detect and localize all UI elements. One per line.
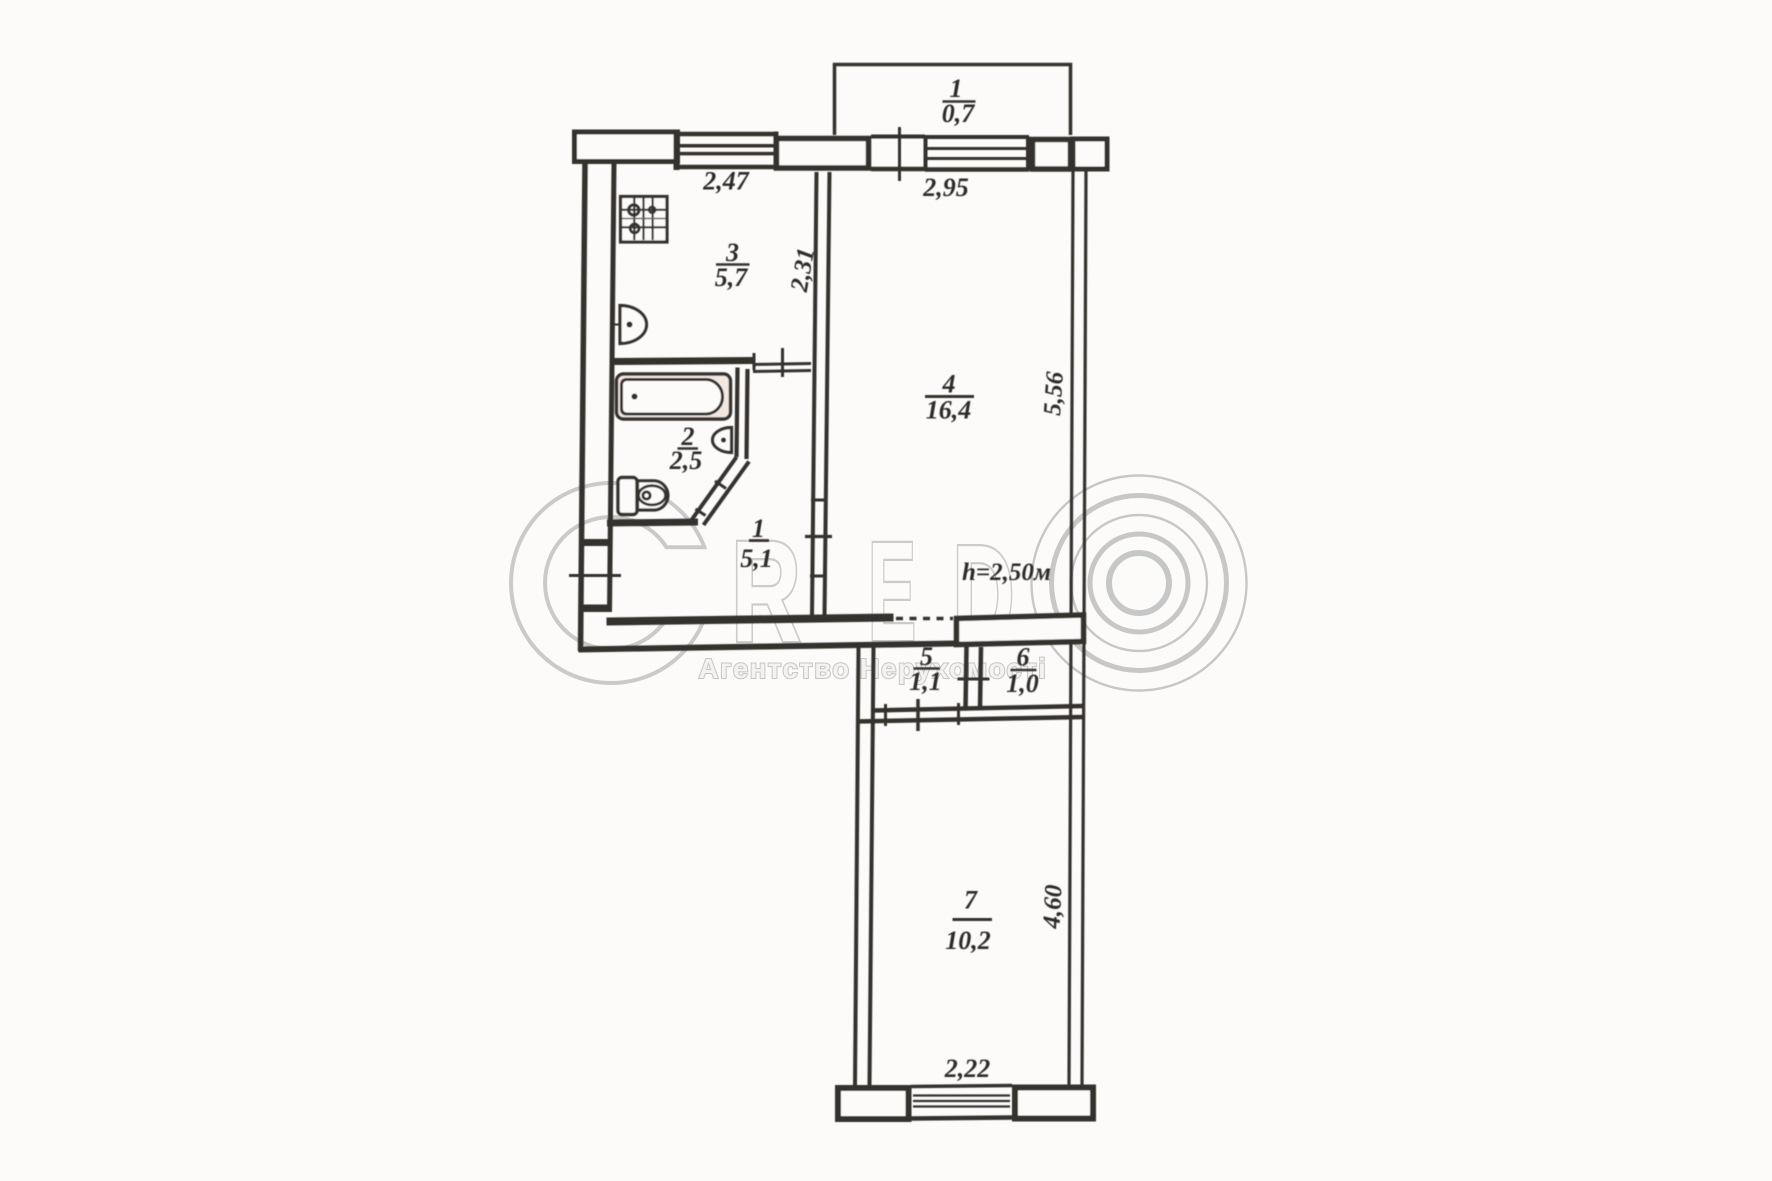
svg-text:16,4: 16,4 — [926, 396, 972, 425]
svg-text:10,2: 10,2 — [945, 926, 991, 955]
svg-text:1: 1 — [752, 514, 765, 543]
svg-text:2,47: 2,47 — [702, 167, 750, 196]
svg-text:h=2,50м: h=2,50м — [962, 559, 1051, 586]
svg-text:6: 6 — [1017, 643, 1030, 672]
svg-text:1,0: 1,0 — [1006, 669, 1039, 698]
svg-text:2,5: 2,5 — [669, 446, 703, 475]
svg-text:2,22: 2,22 — [944, 1054, 991, 1083]
svg-text:5,7: 5,7 — [715, 263, 749, 292]
svg-text:0,7: 0,7 — [942, 99, 976, 128]
svg-text:7: 7 — [964, 886, 978, 915]
svg-text:5,1: 5,1 — [740, 544, 773, 573]
svg-text:4: 4 — [942, 370, 956, 399]
svg-text:5,56: 5,56 — [1039, 370, 1069, 416]
svg-text:4,60: 4,60 — [1038, 884, 1067, 931]
svg-text:D: D — [953, 516, 1015, 675]
svg-text:2,95: 2,95 — [922, 173, 969, 202]
svg-text:1,1: 1,1 — [909, 667, 942, 696]
